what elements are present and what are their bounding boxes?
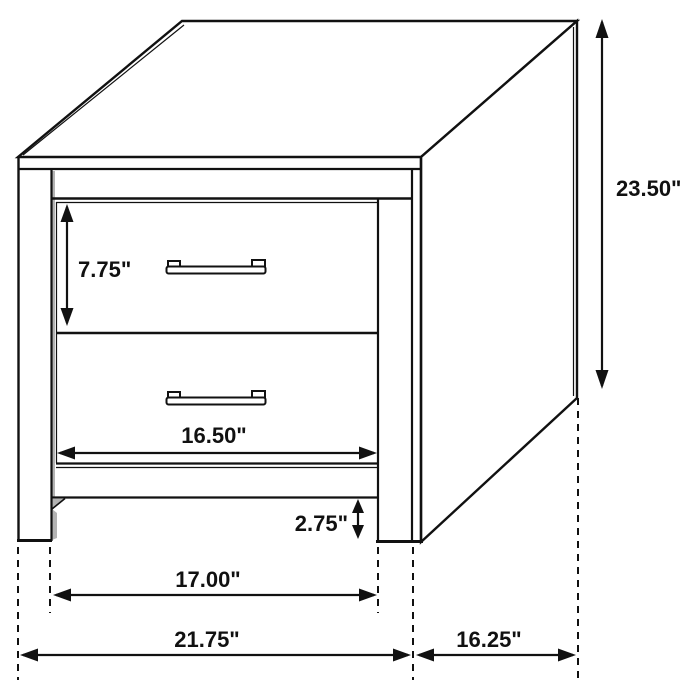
clearance-dimension-label: 2.75" bbox=[295, 511, 348, 536]
depth-dimension-label: 16.25" bbox=[456, 627, 521, 652]
drawer-width-dimension: 16.50" bbox=[57, 423, 377, 460]
diagram-canvas: 23.50" 7.75" 16.50" 2.75" 17 bbox=[0, 0, 700, 700]
depth-dimension: 16.25" bbox=[416, 627, 576, 662]
clearance-dimension: 2.75" bbox=[295, 499, 364, 539]
nightstand-dimension-diagram: 23.50" 7.75" 16.50" 2.75" 17 bbox=[0, 0, 700, 700]
inner-width-dimension-label: 17.00" bbox=[175, 567, 240, 592]
overall-width-dimension-label: 21.75" bbox=[174, 627, 239, 652]
height-dimension-label: 23.50" bbox=[616, 176, 681, 201]
height-dimension: 23.50" bbox=[596, 19, 682, 389]
drawer-height-dimension-label: 7.75" bbox=[78, 257, 131, 282]
drawer-2-handle bbox=[167, 391, 266, 405]
drawer-1-handle bbox=[167, 260, 266, 274]
front-frame bbox=[17, 157, 423, 542]
inner-width-dimension: 17.00" bbox=[53, 567, 377, 602]
overall-width-dimension: 21.75" bbox=[20, 627, 411, 662]
drawer-width-dimension-label: 16.50" bbox=[181, 423, 246, 448]
drawer-height-dimension: 7.75" bbox=[61, 204, 132, 326]
